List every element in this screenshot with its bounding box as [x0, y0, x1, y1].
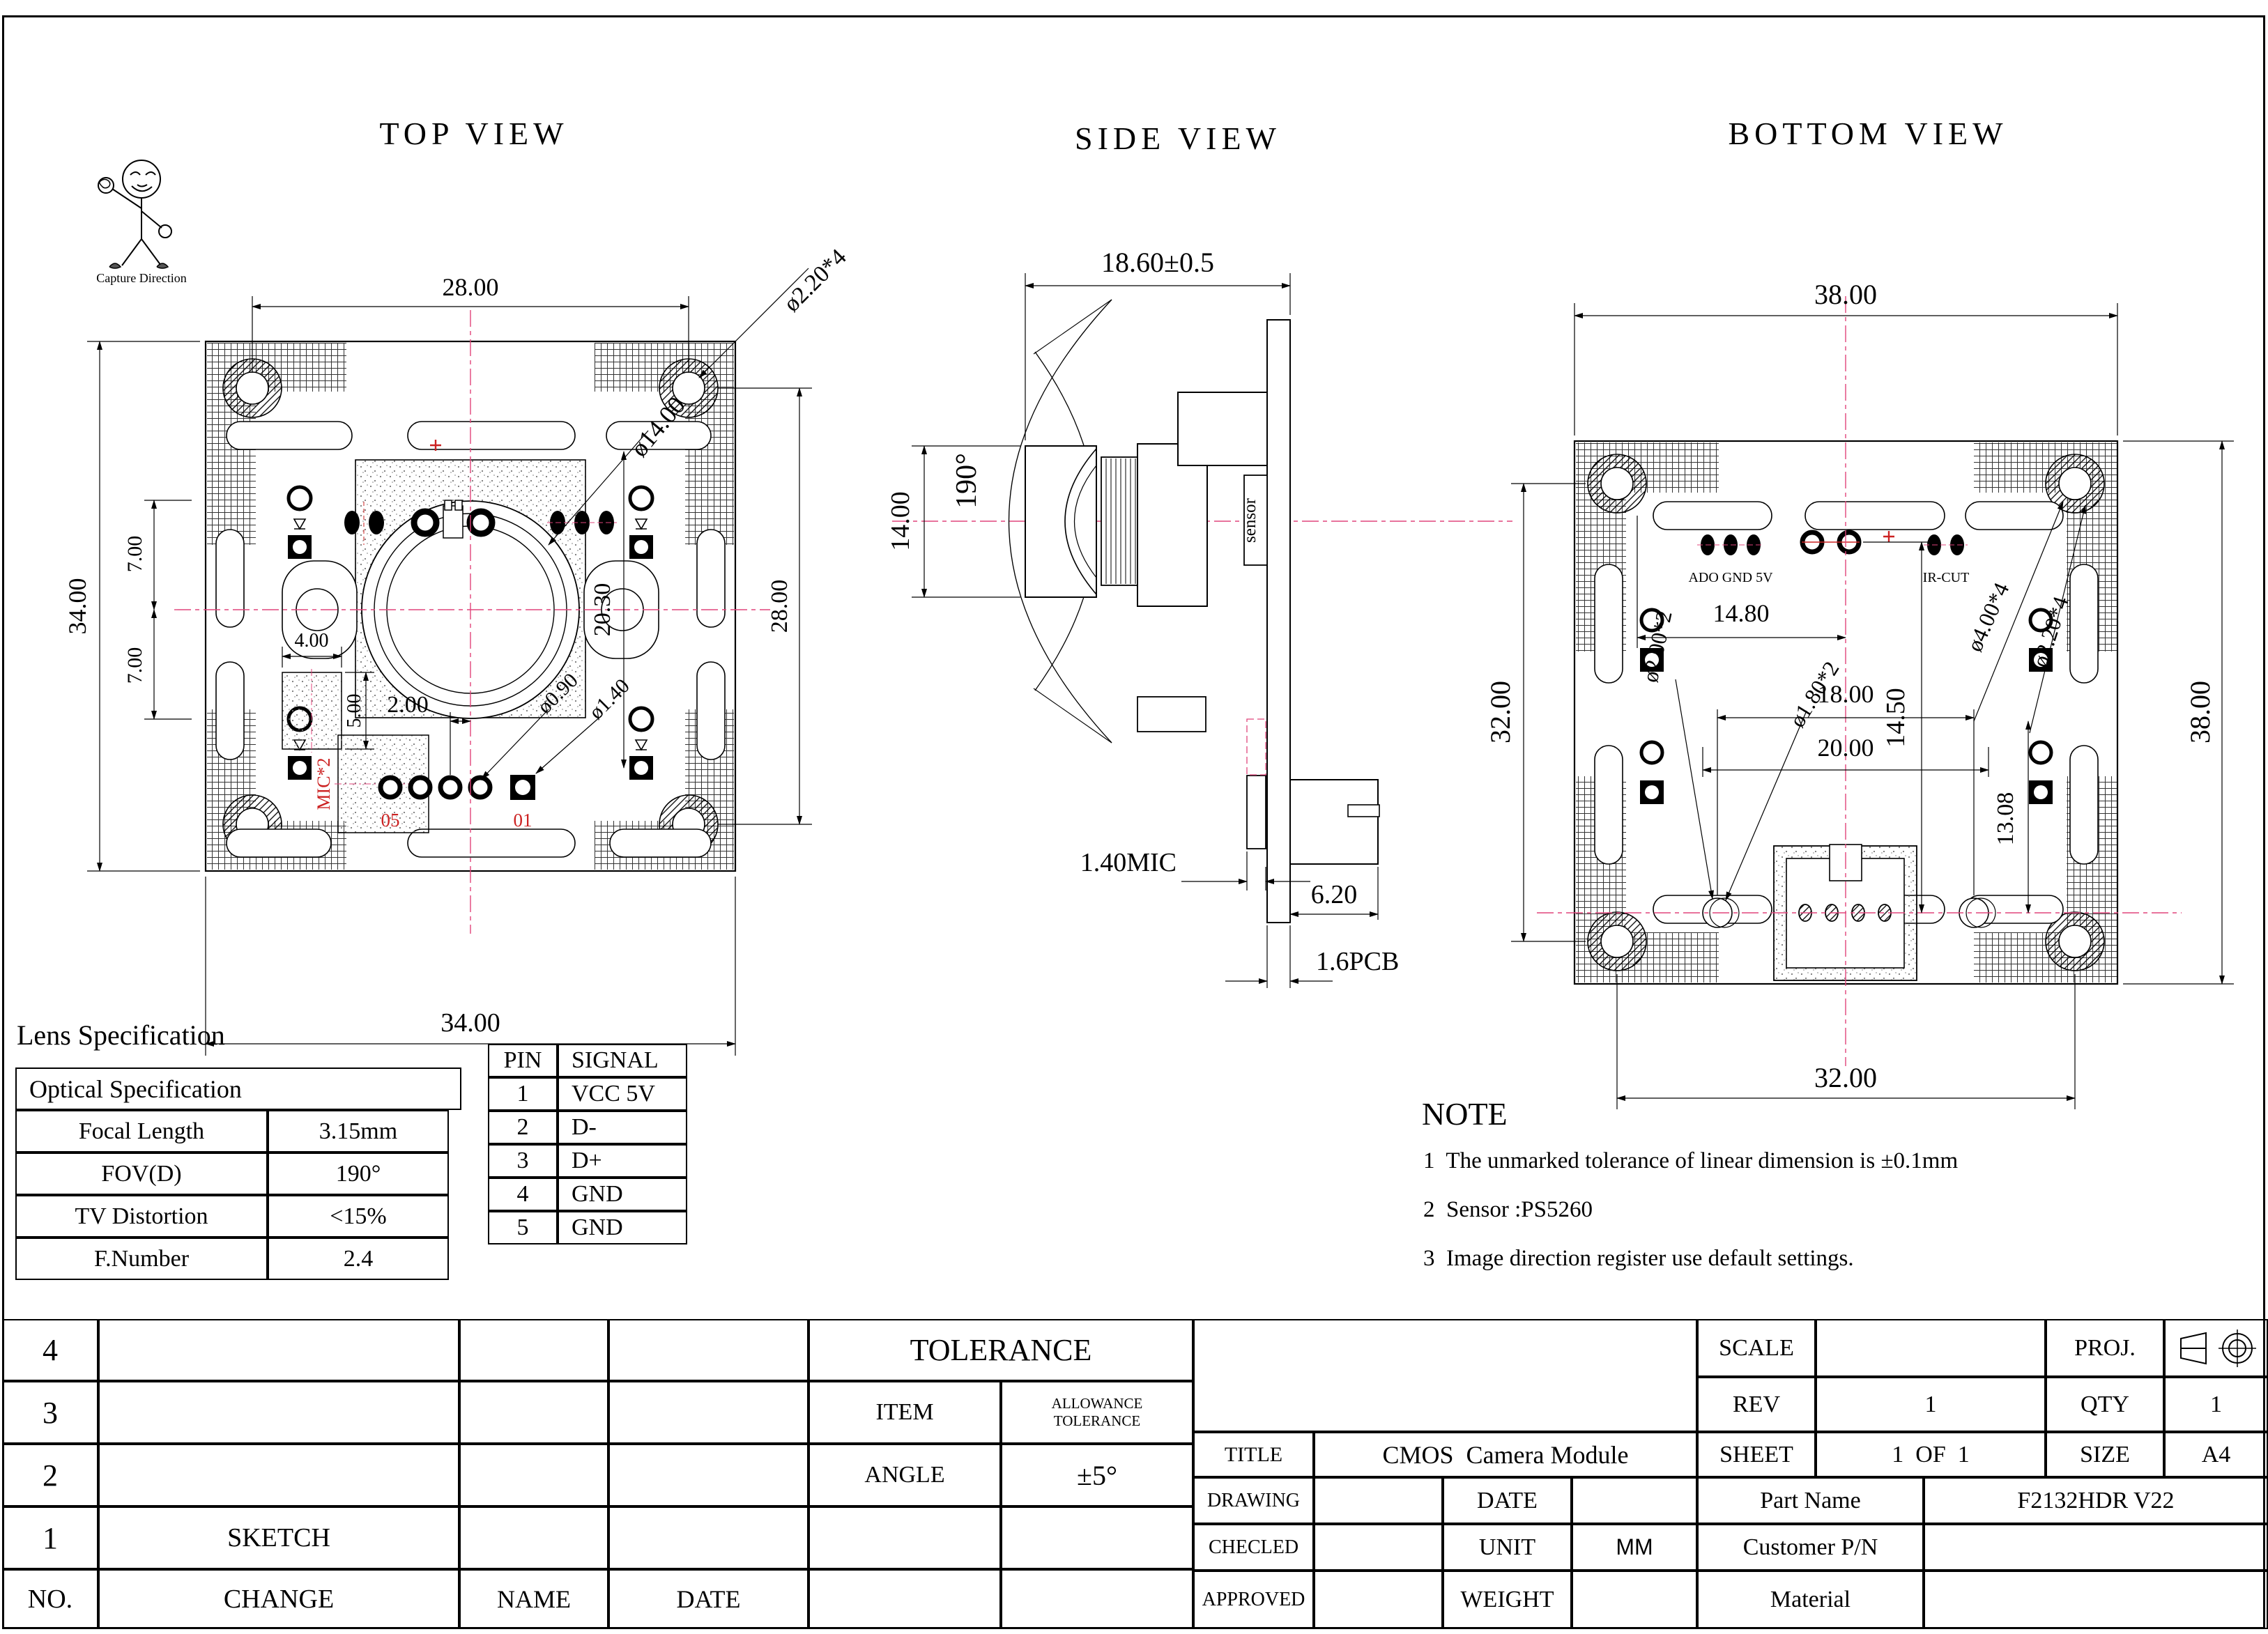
lens-spec-label: TV Distortion	[15, 1195, 268, 1238]
lens-spec-label: Focal Length	[15, 1110, 268, 1153]
signal-cell: GND	[558, 1178, 687, 1211]
unit-value: MM	[1572, 1524, 1697, 1571]
svg-text:18.60±0.5: 18.60±0.5	[1101, 247, 1214, 278]
rev-date-cell	[608, 1319, 809, 1381]
signal-header: SIGNAL	[558, 1044, 687, 1077]
side-dim-texts: 18.60±0.5 14.00 190° 1.40MIC 6.20 1.6PCB	[886, 247, 1399, 976]
sheet-value: 1 OF 1	[1816, 1432, 2046, 1477]
title-value: CMOS Camera Module	[1314, 1432, 1697, 1477]
note-num: 2	[1423, 1197, 1435, 1222]
rev-label: REV	[1697, 1377, 1816, 1432]
angle-label: ANGLE	[809, 1444, 1001, 1506]
lens-spec-label: F.Number	[15, 1238, 268, 1280]
date-label: DATE	[1443, 1477, 1572, 1524]
side-body	[1101, 320, 1379, 923]
svg-text:7.00: 7.00	[123, 536, 146, 573]
drawing-value	[1314, 1477, 1443, 1524]
allowance-empty-cell	[1001, 1569, 1193, 1629]
rev-name-cell	[459, 1506, 608, 1569]
svg-text:4.00: 4.00	[295, 630, 329, 652]
title-label: TITLE	[1193, 1432, 1314, 1477]
customer-pn-value	[1924, 1524, 2268, 1571]
signal-cell: D+	[558, 1144, 687, 1178]
bottom-view-drawing: ADO GND 5V IR-CUT	[1478, 230, 2268, 1136]
lens-spec-value: 190°	[268, 1153, 449, 1195]
pad5-label: 05	[381, 810, 400, 831]
no-label: NO.	[2, 1569, 98, 1629]
svg-text:1.6PCB: 1.6PCB	[1316, 947, 1399, 976]
note-text: The unmarked tolerance of linear dimensi…	[1446, 1148, 1958, 1173]
rev-row-num: 2	[2, 1444, 98, 1506]
lens-spec-heading: Lens Specification	[17, 1019, 225, 1051]
rev-name-cell	[459, 1381, 608, 1444]
top-view-drawing: MIC*2 05 01	[17, 230, 875, 1108]
note-text: Image direction register use default set…	[1446, 1246, 1854, 1271]
sensor-label: sensor	[1241, 498, 1259, 543]
proj-symbol-cell	[2164, 1319, 2268, 1377]
proj-label: PROJ.	[2046, 1319, 2164, 1377]
change-label: CHANGE	[98, 1569, 459, 1629]
rev-date-cell	[608, 1381, 809, 1444]
qty-label: QTY	[2046, 1377, 2164, 1432]
size-value: A4	[2164, 1432, 2268, 1477]
rev-name-cell	[459, 1444, 608, 1506]
side-view-title: SIDE VIEW	[1032, 120, 1324, 157]
side-view-drawing: sensor 18.60±0.5 14.00 190° 1.40MIC 6.20…	[864, 230, 1526, 1115]
svg-text:38.00: 38.00	[2184, 681, 2216, 743]
svg-text:14.00: 14.00	[886, 491, 915, 551]
svg-text:190°: 190°	[951, 453, 983, 509]
svg-text:32.00: 32.00	[1814, 1062, 1877, 1093]
material-label: Material	[1697, 1571, 1924, 1629]
empty-cell	[1193, 1319, 1697, 1432]
rev-row-num: 1	[2, 1506, 98, 1569]
svg-text:34.00: 34.00	[63, 578, 91, 635]
svg-text:20.00: 20.00	[1818, 734, 1874, 762]
rev-date-cell	[608, 1444, 809, 1506]
customer-pn-label: Customer P/N	[1697, 1524, 1924, 1571]
note-heading: NOTE	[1422, 1095, 1508, 1132]
qty-value: 1	[2164, 1377, 2268, 1432]
allowance-line2: TOLERANCE	[1054, 1412, 1140, 1430]
note-num: 1	[1423, 1148, 1435, 1173]
item-empty-cell	[809, 1506, 1001, 1569]
allowance-tolerance-label: ALLOWANCE TOLERANCE	[1001, 1381, 1193, 1444]
rev-value: 1	[1816, 1377, 2046, 1432]
svg-text:28.00: 28.00	[767, 580, 792, 633]
pin-cell: 2	[488, 1111, 558, 1144]
bottom-view-title: BOTTOM VIEW	[1694, 115, 2042, 152]
material-value	[1924, 1571, 2268, 1629]
svg-text:20.30: 20.30	[590, 583, 615, 637]
name-label: NAME	[459, 1569, 608, 1629]
rev-change-cell	[98, 1444, 459, 1506]
mic-label: MIC*2	[314, 757, 334, 810]
signal-cell: GND	[558, 1211, 687, 1244]
pin-cell: 1	[488, 1077, 558, 1111]
rev-row-num: 4	[2, 1319, 98, 1381]
svg-text:5.00: 5.00	[344, 694, 365, 728]
svg-text:6.20: 6.20	[1311, 880, 1358, 909]
svg-text:32.00: 32.00	[1485, 681, 1516, 743]
checked-value	[1314, 1524, 1443, 1571]
svg-text:2.00: 2.00	[387, 692, 429, 718]
rev-change-cell	[98, 1381, 459, 1444]
rev-row-num: 3	[2, 1381, 98, 1444]
drawing-label: DRAWING	[1193, 1477, 1314, 1524]
svg-text:13.08: 13.08	[1993, 792, 2018, 846]
pin-cell: 5	[488, 1211, 558, 1244]
lens-spec-label: FOV(D)	[15, 1153, 268, 1195]
pin-header: PIN	[488, 1044, 558, 1077]
note-text: Sensor :PS5260	[1446, 1197, 1593, 1222]
date-value	[1572, 1477, 1697, 1524]
pad1-label: 01	[514, 810, 532, 831]
top-view-title: TOP VIEW	[328, 115, 620, 152]
svg-text:14.50: 14.50	[1881, 688, 1910, 748]
rev-change-cell	[98, 1319, 459, 1381]
sketch-label: SKETCH	[98, 1506, 459, 1569]
side-mic-hidden	[1247, 719, 1266, 775]
lens-spec-value: 3.15mm	[268, 1110, 449, 1153]
lens-spec-value: 2.4	[268, 1238, 449, 1280]
rev-date-cell	[608, 1506, 809, 1569]
item-label: ITEM	[809, 1381, 1001, 1444]
svg-text:7.00: 7.00	[123, 647, 146, 684]
side-dimensions	[912, 273, 1378, 988]
svg-text:ø2.20*4: ø2.20*4	[779, 244, 851, 316]
third-angle-projection-icon	[2171, 1327, 2262, 1369]
checked-label: CHECLED	[1193, 1524, 1314, 1571]
svg-text:1.40MIC: 1.40MIC	[1080, 848, 1177, 877]
scale-label: SCALE	[1697, 1319, 1816, 1377]
lens-spec-table-title: Optical Specification	[15, 1068, 461, 1110]
pin-cell: 4	[488, 1178, 558, 1211]
weight-value	[1572, 1571, 1697, 1629]
approved-value	[1314, 1571, 1443, 1629]
note-num: 3	[1423, 1246, 1435, 1271]
item-empty-cell	[809, 1569, 1001, 1629]
date-label: DATE	[608, 1569, 809, 1629]
unit-label: UNIT	[1443, 1524, 1572, 1571]
allowance-empty-cell	[1001, 1506, 1193, 1569]
pads-right-label: IR-CUT	[1923, 570, 1970, 585]
svg-text:28.00: 28.00	[443, 273, 499, 301]
part-name-label: Part Name	[1697, 1477, 1924, 1524]
signal-cell: VCC 5V	[558, 1077, 687, 1111]
weight-label: WEIGHT	[1443, 1571, 1572, 1629]
angle-value: ±5°	[1001, 1444, 1193, 1506]
svg-text:38.00: 38.00	[1814, 279, 1877, 310]
pads-left-label: ADO GND 5V	[1688, 570, 1773, 585]
svg-text:18.00: 18.00	[1818, 680, 1874, 708]
svg-text:14.80: 14.80	[1713, 599, 1770, 627]
approved-label: APPROVED	[1193, 1571, 1314, 1629]
part-name-value: F2132HDR V22	[1924, 1477, 2268, 1524]
size-label: SIZE	[2046, 1432, 2164, 1477]
signal-cell: D-	[558, 1111, 687, 1144]
rev-name-cell	[459, 1319, 608, 1381]
drawing-sheet: Capture Direction TOP VIEW SIDE VIEW BOT…	[0, 0, 2268, 1634]
sheet-label: SHEET	[1697, 1432, 1816, 1477]
pin-cell: 3	[488, 1144, 558, 1178]
lens-spec-value: <15%	[268, 1195, 449, 1238]
tolerance-heading: TOLERANCE	[809, 1319, 1193, 1381]
allowance-line1: ALLOWANCE	[1052, 1395, 1143, 1412]
scale-value	[1816, 1319, 2046, 1377]
svg-text:34.00: 34.00	[440, 1008, 500, 1038]
